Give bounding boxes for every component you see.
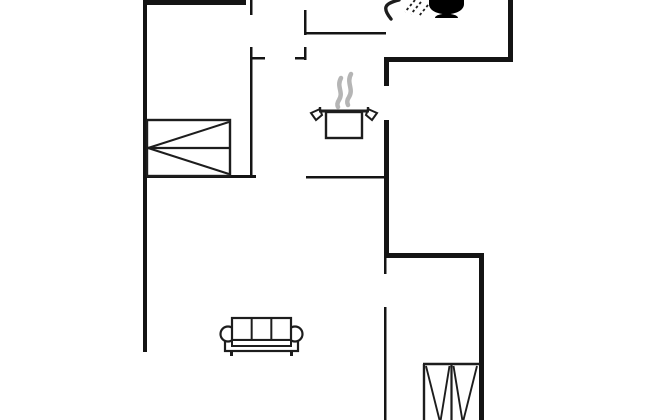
shower-head-icon (386, 0, 399, 19)
bedroom2-door-jamb (384, 258, 387, 274)
floor-plan-canvas (0, 0, 650, 420)
hall-stub-left (250, 57, 265, 60)
bedroom1-top-wall (143, 0, 246, 5)
bedroom2-left-wall (384, 307, 387, 420)
sofa-icon (221, 318, 303, 356)
cooking-pot-icon (311, 107, 377, 138)
bathroom-right-wall (508, 0, 513, 62)
hall-jamb-lower (304, 47, 307, 60)
bedroom2-right-wall (479, 253, 484, 420)
toilet-icon (429, 0, 464, 18)
floor-plan-svg (0, 0, 650, 420)
shower-spray-icon (405, 0, 428, 16)
walls (143, 0, 513, 420)
corridor-top-wall (304, 32, 386, 35)
kitchen-wall-lower (384, 120, 389, 258)
double-bed-icon (147, 120, 230, 176)
bathroom-bottom-wall (386, 57, 513, 62)
bedroom1-right-wall (250, 47, 253, 178)
bedroom1-door-jamb (250, 0, 253, 15)
kitchen-wall-upper (384, 57, 389, 86)
hall-jamb-upper (304, 10, 307, 35)
bedroom2-top-wall (384, 253, 484, 258)
steam-icon (337, 74, 351, 107)
double-bed-2-icon (423, 364, 480, 420)
kitchen-counter-wall (306, 176, 386, 179)
